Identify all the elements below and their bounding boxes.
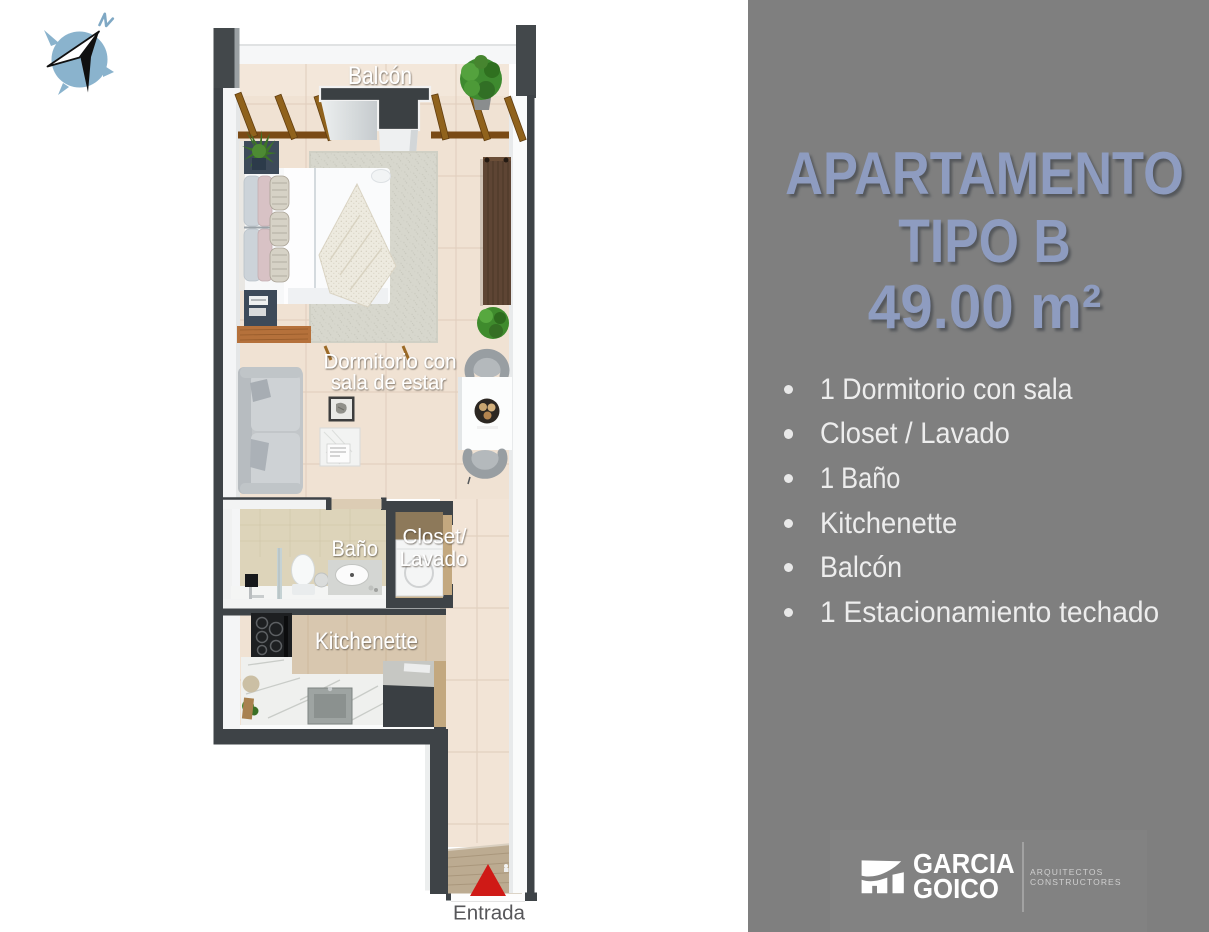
svg-text:Kitchenette: Kitchenette (315, 628, 418, 655)
svg-text:Baño: Baño (332, 536, 379, 561)
svg-text:Dormitorio con: Dormitorio con (324, 351, 457, 374)
svg-text:Lavado: Lavado (400, 548, 468, 571)
svg-text:Closet/: Closet/ (403, 526, 467, 549)
svg-text:Entrada: Entrada (453, 903, 526, 925)
svg-text:sala de estar: sala de estar (331, 372, 446, 395)
svg-text:Balcón: Balcón (348, 62, 412, 90)
